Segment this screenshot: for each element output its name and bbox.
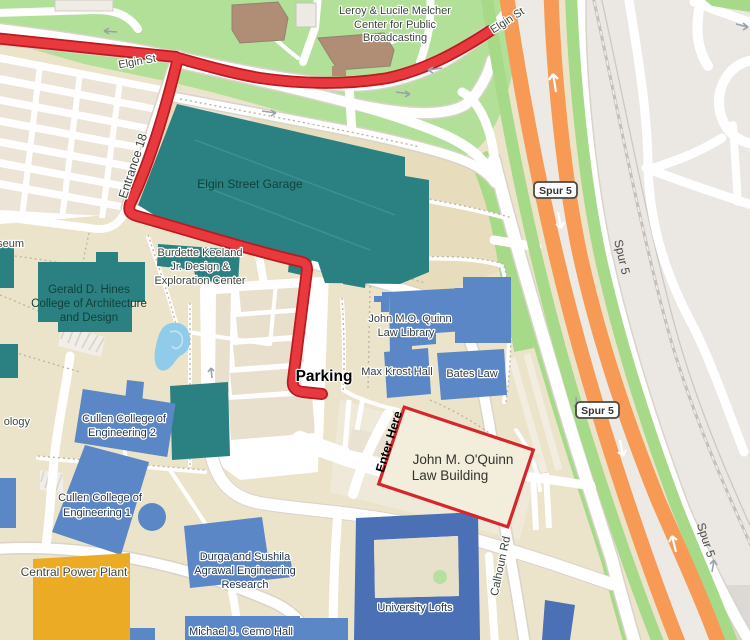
svg-text:College of Architecture: College of Architecture — [31, 298, 147, 310]
svg-text:John M.O. Quinn: John M.O. Quinn — [368, 313, 451, 325]
svg-text:Gerald D. Hines: Gerald D. Hines — [48, 284, 130, 296]
svg-text:Spur 5: Spur 5 — [581, 405, 614, 417]
svg-text:John M. O'Quinn: John M. O'Quinn — [413, 452, 514, 467]
svg-text:Cullen College of: Cullen College of — [58, 492, 143, 504]
svg-text:Parking: Parking — [296, 368, 353, 385]
svg-text:seum: seum — [0, 238, 24, 250]
svg-text:Elgin Street Garage: Elgin Street Garage — [197, 177, 303, 191]
svg-text:Burdette Keeland: Burdette Keeland — [157, 247, 242, 259]
svg-text:Law Library: Law Library — [378, 327, 435, 339]
svg-text:Engineering 1: Engineering 1 — [63, 507, 131, 519]
svg-text:Agrawal Engineering: Agrawal Engineering — [194, 565, 296, 577]
svg-text:Leroy & Lucile Melcher: Leroy & Lucile Melcher — [339, 5, 451, 17]
svg-text:Broadcasting: Broadcasting — [363, 32, 427, 44]
svg-text:Cullen College of: Cullen College of — [82, 413, 167, 425]
svg-text:Bates Law: Bates Law — [446, 368, 497, 380]
svg-text:Engineering 2: Engineering 2 — [88, 427, 156, 439]
svg-text:Research: Research — [221, 579, 268, 591]
svg-text:Jr. Design &: Jr. Design & — [170, 261, 230, 273]
svg-text:Durga and Sushila: Durga and Sushila — [200, 551, 291, 563]
svg-text:Law Building: Law Building — [412, 468, 489, 483]
svg-text:University Lofts: University Lofts — [377, 602, 453, 614]
svg-text:Michael J. Cemo Hall: Michael J. Cemo Hall — [189, 626, 293, 638]
svg-text:ology: ology — [4, 416, 31, 428]
svg-text:Exploration Center: Exploration Center — [154, 275, 245, 287]
svg-text:Spur 5: Spur 5 — [539, 185, 572, 197]
svg-text:Central Power Plant: Central Power Plant — [21, 565, 128, 579]
svg-text:Center for Public: Center for Public — [354, 19, 436, 31]
svg-text:and Design: and Design — [60, 312, 118, 324]
svg-text:Max Krost Hall: Max Krost Hall — [361, 366, 433, 378]
